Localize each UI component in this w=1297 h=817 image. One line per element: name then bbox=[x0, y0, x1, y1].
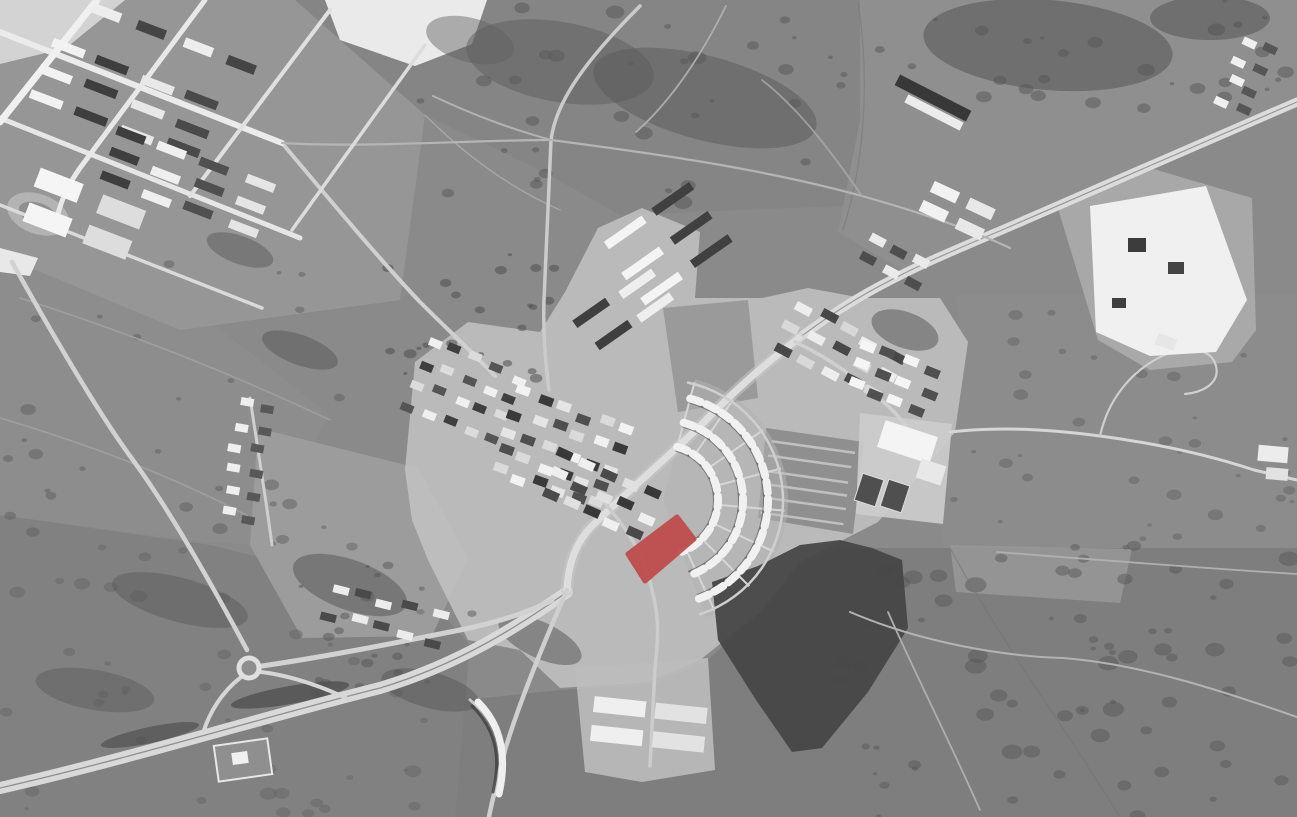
map-viewport bbox=[0, 0, 1297, 817]
aerial-map bbox=[0, 0, 1297, 817]
